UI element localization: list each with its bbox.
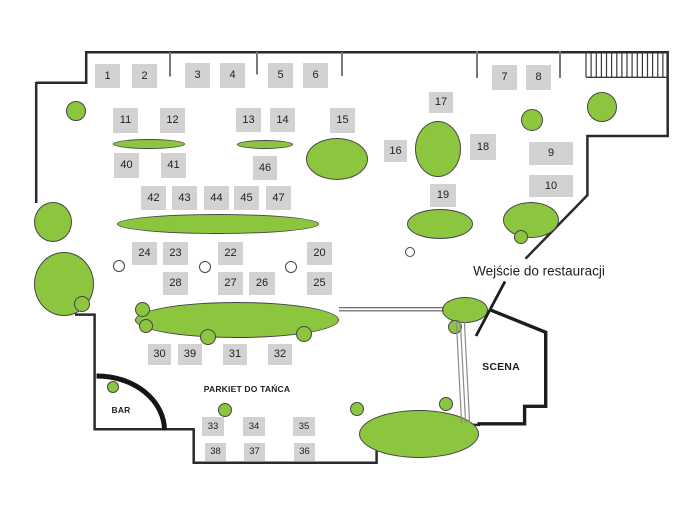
plant-oval xyxy=(34,202,72,242)
plant-circle xyxy=(107,381,119,393)
table-9[interactable]: 9 xyxy=(529,142,573,165)
stage-label: SCENA xyxy=(482,361,520,373)
plant-circle xyxy=(514,230,528,244)
table-11[interactable]: 11 xyxy=(113,108,138,133)
table-25[interactable]: 25 xyxy=(307,272,332,295)
plant-circle xyxy=(296,326,312,342)
plant-circle xyxy=(66,101,86,121)
chair-circle xyxy=(113,260,125,272)
table-46[interactable]: 46 xyxy=(253,156,277,180)
plant-circle xyxy=(200,329,216,345)
table-40[interactable]: 40 xyxy=(114,153,139,178)
table-43[interactable]: 43 xyxy=(172,186,197,210)
table-20[interactable]: 20 xyxy=(307,242,332,265)
plant-circle xyxy=(448,320,462,334)
table-47[interactable]: 47 xyxy=(266,186,291,210)
table-18[interactable]: 18 xyxy=(470,134,496,160)
table-44[interactable]: 44 xyxy=(204,186,229,210)
table-36[interactable]: 36 xyxy=(294,443,315,461)
table-22[interactable]: 22 xyxy=(218,242,243,265)
railing-lines xyxy=(339,308,444,311)
table-35[interactable]: 35 xyxy=(293,417,315,436)
table-2[interactable]: 2 xyxy=(132,64,157,88)
table-41[interactable]: 41 xyxy=(161,153,186,178)
table-4[interactable]: 4 xyxy=(220,63,245,88)
table-12[interactable]: 12 xyxy=(160,108,185,133)
plant-oval xyxy=(306,138,368,180)
plant-oval xyxy=(237,140,293,149)
table-26[interactable]: 26 xyxy=(249,272,275,295)
table-3[interactable]: 3 xyxy=(185,63,210,88)
table-34[interactable]: 34 xyxy=(243,417,265,436)
plant-oval xyxy=(113,139,185,149)
table-1[interactable]: 1 xyxy=(95,64,120,88)
table-13[interactable]: 13 xyxy=(236,108,261,132)
table-30[interactable]: 30 xyxy=(148,344,171,365)
plant-circle xyxy=(439,397,453,411)
table-5[interactable]: 5 xyxy=(268,63,293,88)
table-19[interactable]: 19 xyxy=(430,184,456,207)
dance-floor-label: PARKIET DO TAŃCA xyxy=(204,384,290,394)
table-39[interactable]: 39 xyxy=(178,344,202,365)
table-7[interactable]: 7 xyxy=(492,65,517,90)
table-8[interactable]: 8 xyxy=(526,65,551,90)
plant-oval xyxy=(117,214,319,234)
table-45[interactable]: 45 xyxy=(234,186,259,210)
restaurant-floor-plan: 1234567891011121314151617181920222324252… xyxy=(0,0,700,520)
table-32[interactable]: 32 xyxy=(268,344,292,365)
table-37[interactable]: 37 xyxy=(244,443,265,461)
plant-oval xyxy=(442,297,488,323)
bar-label: BAR xyxy=(111,405,130,415)
table-31[interactable]: 31 xyxy=(223,344,247,365)
plant-circle xyxy=(587,92,617,122)
plant-oval xyxy=(359,410,479,458)
chair-circle xyxy=(199,261,211,273)
table-16[interactable]: 16 xyxy=(384,140,407,162)
table-33[interactable]: 33 xyxy=(202,417,224,436)
plant-oval xyxy=(503,202,559,238)
plant-circle xyxy=(74,296,90,312)
table-27[interactable]: 27 xyxy=(218,272,243,295)
plant-circle xyxy=(350,402,364,416)
table-15[interactable]: 15 xyxy=(330,108,355,133)
chair-circle xyxy=(285,261,297,273)
stairs-hatch xyxy=(586,53,669,78)
chair-circle xyxy=(405,247,415,257)
table-10[interactable]: 10 xyxy=(529,175,573,197)
stage-steps-lines xyxy=(456,322,469,423)
table-42[interactable]: 42 xyxy=(141,186,166,210)
table-28[interactable]: 28 xyxy=(163,272,188,295)
table-38[interactable]: 38 xyxy=(205,443,226,461)
table-14[interactable]: 14 xyxy=(270,108,295,132)
table-6[interactable]: 6 xyxy=(303,63,328,88)
plant-circle xyxy=(135,302,150,317)
entrance-label: Wejście do restauracji xyxy=(473,264,605,279)
table-23[interactable]: 23 xyxy=(163,242,188,265)
table-24[interactable]: 24 xyxy=(132,242,157,265)
plant-circle xyxy=(139,319,153,333)
plant-circle xyxy=(521,109,543,131)
table-17[interactable]: 17 xyxy=(429,92,453,113)
plant-circle xyxy=(218,403,232,417)
plant-oval xyxy=(415,121,461,177)
plant-oval xyxy=(407,209,473,239)
